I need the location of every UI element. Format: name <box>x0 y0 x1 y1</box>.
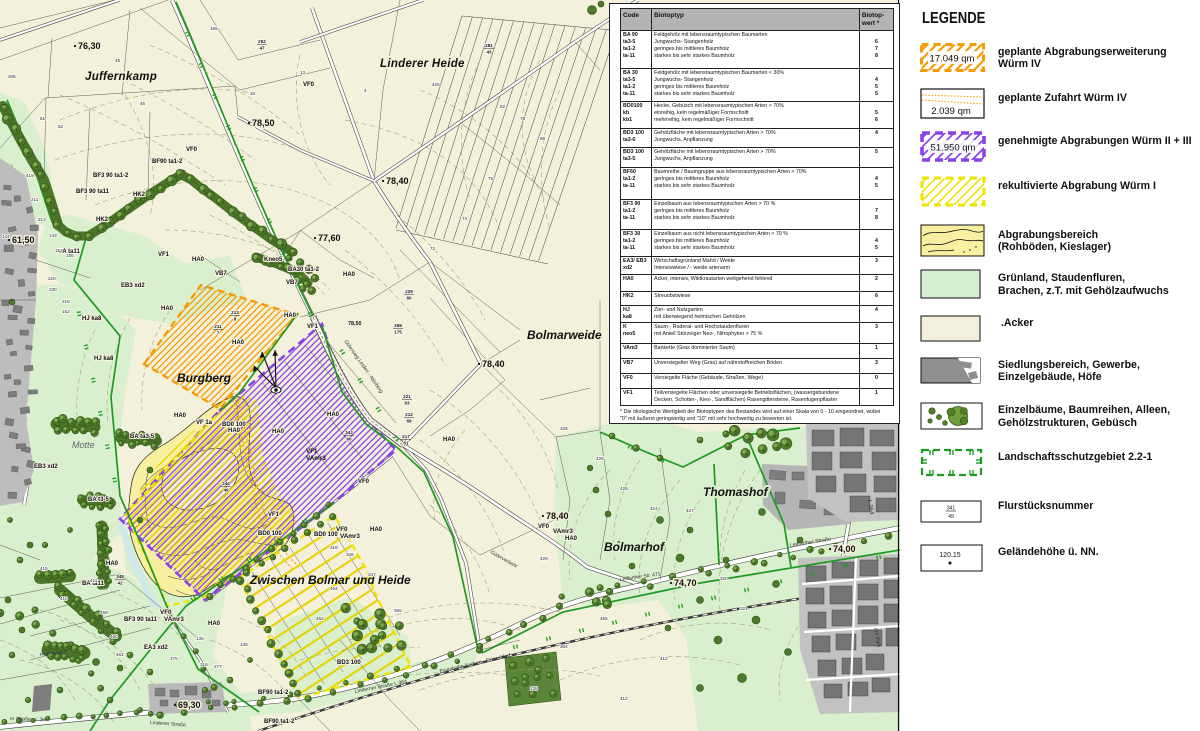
svg-text:375: 375 <box>170 656 178 661</box>
svg-text:VF0: VF0 <box>303 82 315 88</box>
svg-text:419: 419 <box>26 173 34 178</box>
svg-text:HA0: HA0 <box>174 413 187 419</box>
svg-text:281: 281 <box>485 43 493 48</box>
svg-text:Motte: Motte <box>72 440 95 450</box>
svg-text:212: 212 <box>405 412 413 417</box>
svg-text:343: 343 <box>345 430 353 435</box>
svg-text:BA ta3-5: BA ta3-5 <box>130 434 155 440</box>
svg-text:72: 72 <box>430 246 436 251</box>
svg-text:HA0: HA0 <box>228 428 241 434</box>
svg-text:165: 165 <box>210 26 218 31</box>
svg-text:143: 143 <box>49 233 57 238</box>
svg-text:75: 75 <box>488 176 494 181</box>
svg-text:10: 10 <box>250 91 256 96</box>
svg-text:318: 318 <box>330 545 338 550</box>
svg-text:BF90 ta1-2: BF90 ta1-2 <box>258 690 289 696</box>
svg-text:HA0: HA0 <box>208 621 221 627</box>
svg-text:74,70: 74,70 <box>674 578 697 588</box>
svg-text:VB7: VB7 <box>286 280 298 286</box>
svg-text:Juffernkamp: Juffernkamp <box>85 71 157 83</box>
svg-text:HA0: HA0 <box>443 437 456 443</box>
svg-text:VF0: VF0 <box>160 609 172 616</box>
svg-text:HA0: HA0 <box>272 429 285 435</box>
svg-text:Bolmarweide: Bolmarweide <box>527 328 602 342</box>
svg-text:136: 136 <box>240 642 248 647</box>
svg-text:VF0: VF0 <box>186 147 198 153</box>
svg-text:78,40: 78,40 <box>546 511 569 521</box>
svg-text:17.049 qm: 17.049 qm <box>930 54 975 65</box>
svg-text:220: 220 <box>48 276 56 281</box>
svg-text:HA0: HA0 <box>284 313 297 319</box>
svg-text:426: 426 <box>620 486 628 491</box>
svg-text:BD3 100: BD3 100 <box>337 660 361 666</box>
svg-text:217: 217 <box>402 434 410 439</box>
svg-text:277: 277 <box>214 664 222 669</box>
svg-text:HA0: HA0 <box>327 412 340 418</box>
svg-text:Zwischen Bolmar und Heide: Zwischen Bolmar und Heide <box>249 573 411 587</box>
svg-text:211: 211 <box>214 324 222 329</box>
svg-text:EB3 xd2: EB3 xd2 <box>34 464 58 470</box>
svg-text:355: 355 <box>394 608 402 613</box>
svg-text:77,60: 77,60 <box>318 233 341 243</box>
svg-text:429: 429 <box>540 556 548 561</box>
svg-text:425: 425 <box>596 456 604 461</box>
svg-text:BD0 100: BD0 100 <box>314 532 338 538</box>
svg-text:74: 74 <box>462 216 468 221</box>
svg-text:VF 1a: VF 1a <box>196 420 213 426</box>
svg-text:304: 304 <box>560 644 568 649</box>
svg-text:153: 153 <box>55 248 63 253</box>
svg-text:206: 206 <box>8 74 16 79</box>
svg-text:346: 346 <box>346 552 354 557</box>
svg-text:78,50: 78,50 <box>348 321 362 327</box>
svg-text:51.950 qm: 51.950 qm <box>931 143 976 154</box>
svg-text:316: 316 <box>200 662 208 667</box>
svg-text:120,15: 120,15 <box>939 552 961 559</box>
svg-text:VF0: VF0 <box>336 526 348 533</box>
svg-text:HA0: HA0 <box>161 306 174 312</box>
svg-text:HA0: HA0 <box>232 340 245 346</box>
svg-text:42: 42 <box>117 580 123 585</box>
svg-text:VF1: VF1 <box>307 324 319 330</box>
svg-text:78: 78 <box>520 116 526 121</box>
svg-text:229: 229 <box>405 289 413 294</box>
svg-text:221: 221 <box>403 394 411 399</box>
svg-text:86: 86 <box>540 136 546 141</box>
svg-text:EB3 xd2: EB3 xd2 <box>121 283 145 289</box>
svg-text:427: 427 <box>686 508 694 513</box>
svg-text:269: 269 <box>394 323 402 328</box>
svg-text:63: 63 <box>404 400 410 405</box>
svg-text:460: 460 <box>110 634 118 639</box>
svg-text:69,30: 69,30 <box>178 700 201 710</box>
svg-text:BF3 90 ta11: BF3 90 ta11 <box>76 189 110 195</box>
svg-text:HA0: HA0 <box>370 527 383 533</box>
svg-text:8: 8 <box>234 316 237 321</box>
svg-text:VAmr3: VAmr3 <box>553 528 573 535</box>
svg-text:412: 412 <box>660 656 668 661</box>
svg-text:VAmr3: VAmr3 <box>306 455 326 462</box>
svg-text:162: 162 <box>62 309 70 314</box>
svg-text:155: 155 <box>66 253 74 258</box>
svg-text:415: 415 <box>40 566 48 571</box>
svg-text:HA0: HA0 <box>565 536 578 542</box>
svg-text:78,40: 78,40 <box>386 176 409 186</box>
svg-text:7: 7 <box>217 330 220 335</box>
svg-text:60: 60 <box>406 295 412 300</box>
svg-text:13: 13 <box>300 70 306 75</box>
svg-text:218: 218 <box>62 299 70 304</box>
svg-text:61: 61 <box>40 116 46 121</box>
svg-text:VF1: VF1 <box>268 512 280 518</box>
svg-text:BF90 ta1-2: BF90 ta1-2 <box>264 719 295 725</box>
svg-text:341: 341 <box>947 506 956 512</box>
svg-text:462: 462 <box>316 616 324 621</box>
svg-text:HA0: HA0 <box>343 272 356 278</box>
svg-text:76,30: 76,30 <box>78 41 101 51</box>
svg-text:HJ ka8: HJ ka8 <box>94 356 114 362</box>
svg-text:459: 459 <box>100 610 108 615</box>
svg-text:61: 61 <box>403 440 409 445</box>
svg-text:455: 455 <box>600 616 608 621</box>
svg-text:VB7: VB7 <box>215 271 227 277</box>
svg-text:411: 411 <box>90 578 98 583</box>
svg-text:BA30 ta1-2: BA30 ta1-2 <box>288 267 320 273</box>
svg-text:VF0: VF0 <box>538 524 550 530</box>
svg-text:49: 49 <box>223 487 229 492</box>
svg-text:244: 244 <box>222 481 230 486</box>
svg-text:202: 202 <box>258 39 266 44</box>
svg-text:320: 320 <box>720 576 728 581</box>
svg-text:425: 425 <box>432 82 440 87</box>
svg-text:HK2: HK2 <box>96 217 109 223</box>
svg-text:VAmr3: VAmr3 <box>164 616 184 623</box>
svg-text:HA0: HA0 <box>106 561 119 567</box>
svg-text:230: 230 <box>49 287 57 292</box>
svg-text:461: 461 <box>116 652 124 657</box>
svg-text:348: 348 <box>116 574 124 579</box>
svg-text:45: 45 <box>115 58 121 63</box>
svg-text:HK2: HK2 <box>133 192 146 198</box>
svg-text:2.039 qm: 2.039 qm <box>931 106 971 117</box>
svg-text:BF3 90 ta1-2: BF3 90 ta1-2 <box>93 173 129 179</box>
svg-text:VAmr3: VAmr3 <box>340 533 360 540</box>
svg-text:424: 424 <box>650 506 658 511</box>
svg-text:Burgberg: Burgberg <box>177 371 232 385</box>
svg-text:62: 62 <box>58 124 64 129</box>
svg-text:135: 135 <box>530 686 538 691</box>
svg-text:VF0: VF0 <box>358 479 370 485</box>
svg-text:HJ ka8: HJ ka8 <box>82 316 102 322</box>
svg-text:175: 175 <box>394 329 402 334</box>
svg-text:213: 213 <box>38 217 46 222</box>
svg-text:61,50: 61,50 <box>12 235 35 245</box>
svg-text:BA t3-5: BA t3-5 <box>88 497 109 503</box>
svg-text:BF90 ta1-2: BF90 ta1-2 <box>152 159 183 165</box>
svg-text:412: 412 <box>620 696 628 701</box>
svg-text:78,40: 78,40 <box>482 359 505 369</box>
svg-text:213: 213 <box>231 310 239 315</box>
svg-text:VF1: VF1 <box>306 448 318 455</box>
svg-text:82: 82 <box>500 104 506 109</box>
svg-text:321: 321 <box>740 606 748 611</box>
svg-text:Thomashof: Thomashof <box>703 485 769 499</box>
svg-text:Linderer Heide: Linderer Heide <box>380 58 465 70</box>
svg-text:EA3 xd2: EA3 xd2 <box>144 645 168 651</box>
svg-text:43: 43 <box>486 49 492 54</box>
svg-text:BF3 90 ta11: BF3 90 ta11 <box>124 617 158 623</box>
svg-text:46: 46 <box>140 101 146 106</box>
svg-text:4: 4 <box>364 88 367 93</box>
svg-text:410: 410 <box>60 596 68 601</box>
svg-text:144: 144 <box>2 234 10 239</box>
svg-text:74,00: 74,00 <box>833 544 856 554</box>
svg-text:347: 347 <box>368 572 376 577</box>
svg-text:47: 47 <box>259 45 265 50</box>
svg-text:49: 49 <box>948 514 954 520</box>
svg-text:BD0 100: BD0 100 <box>258 531 282 537</box>
svg-text:Kneo5: Kneo5 <box>264 257 283 263</box>
svg-text:211: 211 <box>31 197 39 202</box>
svg-text:326: 326 <box>560 426 568 431</box>
svg-text:Bolmarhof: Bolmarhof <box>604 540 665 554</box>
svg-text:HA0: HA0 <box>192 257 205 263</box>
svg-text:464: 464 <box>330 586 338 591</box>
svg-text:78,50: 78,50 <box>252 118 275 128</box>
svg-text:VF1: VF1 <box>158 252 170 258</box>
svg-text:69: 69 <box>406 418 412 423</box>
svg-text:60: 60 <box>346 436 352 441</box>
svg-text:135: 135 <box>196 636 204 641</box>
